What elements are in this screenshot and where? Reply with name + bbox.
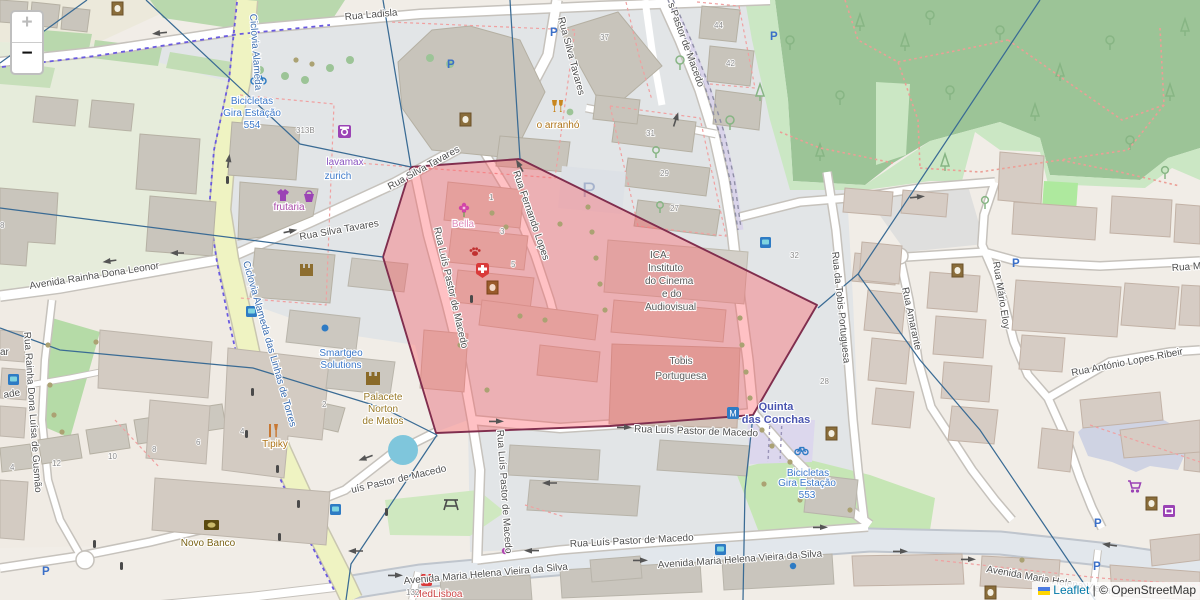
svg-text:6: 6 [196, 438, 201, 447]
svg-text:Gira Estação: Gira Estação [778, 478, 836, 489]
svg-text:do Cinema: do Cinema [645, 276, 694, 287]
svg-text:27: 27 [670, 204, 679, 213]
svg-text:313B: 313B [296, 126, 315, 135]
svg-text:e do: e do [662, 289, 682, 300]
svg-text:M: M [729, 409, 737, 419]
svg-text:32: 32 [790, 251, 799, 260]
svg-text:lavamax: lavamax [326, 157, 363, 168]
svg-text:44: 44 [714, 21, 723, 30]
svg-text:frutaria: frutaria [273, 202, 305, 213]
svg-text:Smartgeo: Smartgeo [319, 348, 363, 359]
svg-text:28: 28 [820, 377, 829, 386]
svg-text:132: 132 [406, 588, 420, 597]
svg-text:12: 12 [52, 459, 61, 468]
svg-text:Solutions: Solutions [320, 360, 361, 371]
svg-text:de Matos: de Matos [362, 416, 403, 427]
svg-text:P: P [447, 59, 455, 71]
svg-text:8: 8 [152, 445, 157, 454]
svg-text:3: 3 [500, 227, 505, 236]
svg-text:Bicicletas: Bicicletas [231, 96, 273, 107]
svg-text:31: 31 [646, 129, 655, 138]
svg-text:das Conchas: das Conchas [742, 414, 810, 426]
svg-text:Quinta: Quinta [759, 401, 795, 413]
svg-text:P: P [1093, 561, 1101, 573]
svg-text:zurich: zurich [325, 171, 352, 182]
svg-text:o arranhó: o arranhó [537, 120, 580, 131]
svg-text:Tobis: Tobis [669, 356, 692, 367]
svg-text:29: 29 [660, 169, 669, 178]
svg-text:Audiovisual: Audiovisual [645, 302, 696, 313]
svg-text:P: P [42, 566, 50, 578]
svg-text:Novo Banco: Novo Banco [181, 538, 236, 549]
svg-text:1: 1 [489, 193, 494, 202]
svg-text:42: 42 [726, 59, 735, 68]
svg-text:ICA:: ICA: [650, 250, 669, 261]
svg-text:P: P [550, 27, 558, 39]
svg-text:553: 553 [799, 490, 816, 501]
svg-text:5: 5 [511, 260, 516, 269]
svg-text:2: 2 [322, 400, 327, 409]
svg-text:MedLisboa: MedLisboa [414, 589, 463, 600]
svg-text:Palacete: Palacete [364, 392, 403, 403]
svg-text:Tipiky: Tipiky [262, 439, 288, 450]
svg-text:Norton: Norton [368, 404, 398, 415]
svg-text:Rua M: Rua M [1171, 261, 1200, 274]
svg-text:P: P [770, 31, 778, 43]
svg-text:Gira Estação: Gira Estação [223, 108, 281, 119]
svg-text:37: 37 [600, 33, 609, 42]
svg-text:10: 10 [108, 452, 117, 461]
svg-text:Portuguesa: Portuguesa [655, 371, 707, 382]
svg-text:P: P [1094, 518, 1102, 530]
svg-text:8: 8 [0, 221, 5, 230]
svg-text:Instituto: Instituto [648, 263, 683, 274]
svg-text:P: P [1012, 258, 1020, 270]
svg-text:Bella: Bella [452, 219, 475, 230]
svg-text:4: 4 [240, 427, 245, 436]
svg-text:554: 554 [244, 120, 261, 131]
svg-text:ar: ar [0, 347, 10, 358]
svg-text:4: 4 [10, 463, 15, 472]
